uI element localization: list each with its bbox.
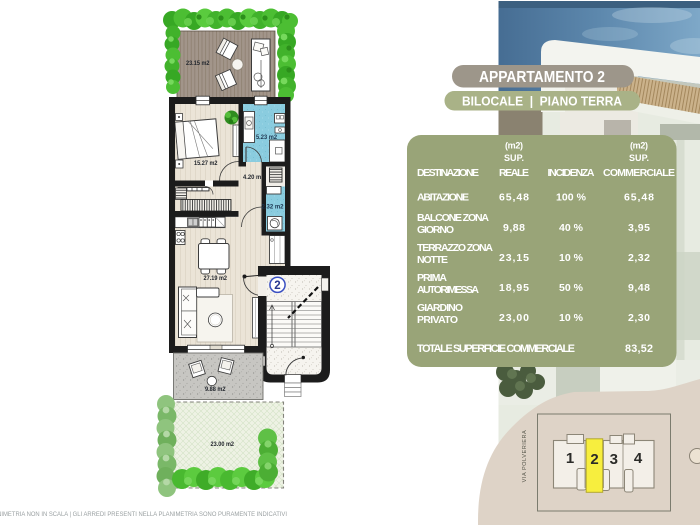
svg-text:COMMERCIALE: COMMERCIALE [603,167,675,179]
svg-text:9.88 m2: 9.88 m2 [205,386,226,393]
svg-text:23.00 m2: 23.00 m2 [211,441,235,448]
svg-text:18,95: 18,95 [499,282,529,294]
svg-text:2: 2 [590,451,598,468]
svg-text:GIARDINO: GIARDINO [417,302,463,314]
svg-text:APPARTAMENTO 2: APPARTAMENTO 2 [479,69,605,86]
svg-text:2: 2 [274,280,280,292]
svg-text:5.23 m2: 5.23 m2 [256,134,277,141]
svg-text:40 %: 40 % [559,222,584,234]
svg-text:TERRAZZO ZONA: TERRAZZO ZONA [417,242,493,254]
svg-text:SUP.: SUP. [504,153,524,163]
svg-text:4: 4 [634,450,643,467]
svg-text:AUTORIMESSA: AUTORIMESSA [417,284,479,296]
svg-text:DESTINAZIONE: DESTINAZIONE [417,167,479,179]
svg-text:50 %: 50 % [559,282,584,294]
svg-text:INCIDENZA: INCIDENZA [548,167,595,179]
svg-text:10 %: 10 % [559,252,584,264]
svg-text:15.27 m2: 15.27 m2 [194,160,218,167]
svg-text:9,88: 9,88 [503,222,525,234]
svg-text:100 %: 100 % [556,192,587,204]
svg-text:2,32: 2,32 [628,252,650,264]
svg-text:TOTALE SUPERFICIE COMMERCIALE: TOTALE SUPERFICIE COMMERCIALE [417,343,575,355]
svg-text:PLANIMETRIA NON IN SCALA | G: PLANIMETRIA NON IN SCALA | GLI ARREDI PR… [0,511,287,518]
svg-text:BILOCALE | PIANO TERRA: BILOCALE | PIANO TERRA [462,94,623,109]
svg-text:NOTTE: NOTTE [417,254,448,266]
svg-text:PRIMA: PRIMA [417,272,447,284]
svg-text:65,48: 65,48 [499,192,529,204]
svg-text:23,00: 23,00 [499,312,529,324]
svg-text:83,52: 83,52 [625,343,653,355]
svg-text:3: 3 [610,451,618,468]
svg-text:65,48: 65,48 [624,192,654,204]
svg-text:BALCONE ZONA: BALCONE ZONA [417,212,489,224]
svg-text:REALE: REALE [499,167,529,179]
svg-text:2,30: 2,30 [628,312,650,324]
svg-text:27.19 m2: 27.19 m2 [204,275,228,282]
svg-text:PRIVATO: PRIVATO [417,314,458,326]
svg-text:SUP.: SUP. [629,153,649,163]
svg-text:23,15: 23,15 [499,252,529,264]
svg-text:VIA POLVERIERA: VIA POLVERIERA [522,430,528,483]
svg-text:9,48: 9,48 [628,282,650,294]
svg-text:10 %: 10 % [559,312,584,324]
svg-text:3,95: 3,95 [628,222,650,234]
svg-text:2.32 m2: 2.32 m2 [262,204,284,211]
svg-text:23.15 m2: 23.15 m2 [186,60,210,67]
svg-text:GIORNO: GIORNO [417,224,454,236]
svg-text:1: 1 [566,450,574,467]
svg-text:(m2): (m2) [505,141,523,151]
svg-text:(m2): (m2) [630,141,648,151]
svg-text:ABITAZIONE: ABITAZIONE [417,192,469,204]
